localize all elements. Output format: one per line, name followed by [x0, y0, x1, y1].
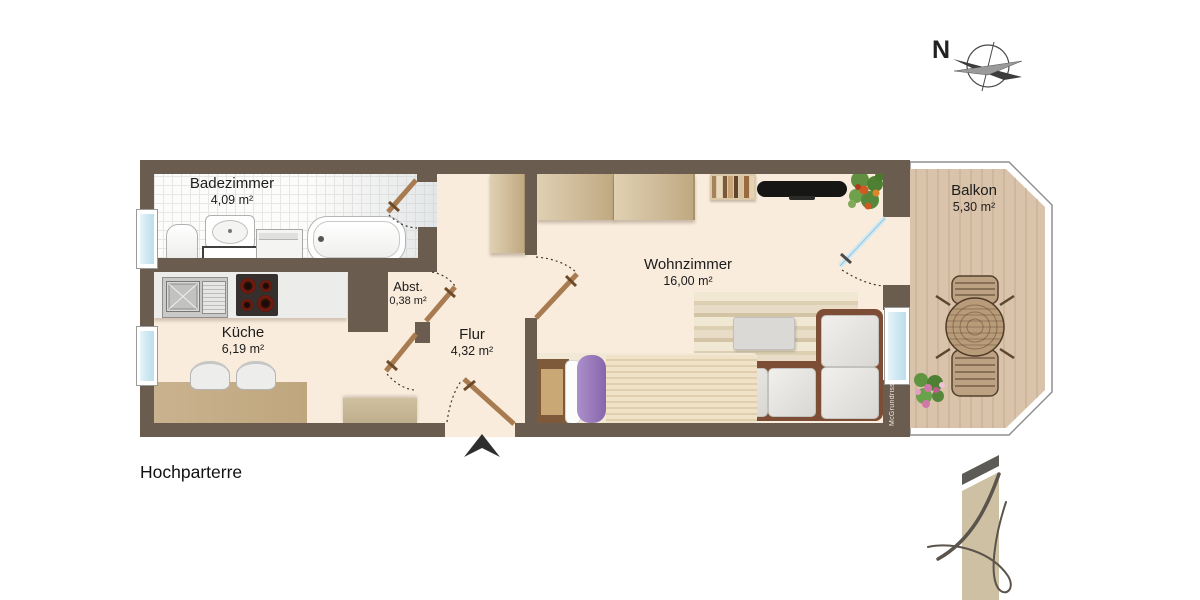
floorplan-canvas: Badezimmer 4,09 m² Küche 6,19 m² Abst. 0… — [0, 0, 1200, 600]
company-logo — [0, 0, 1200, 600]
